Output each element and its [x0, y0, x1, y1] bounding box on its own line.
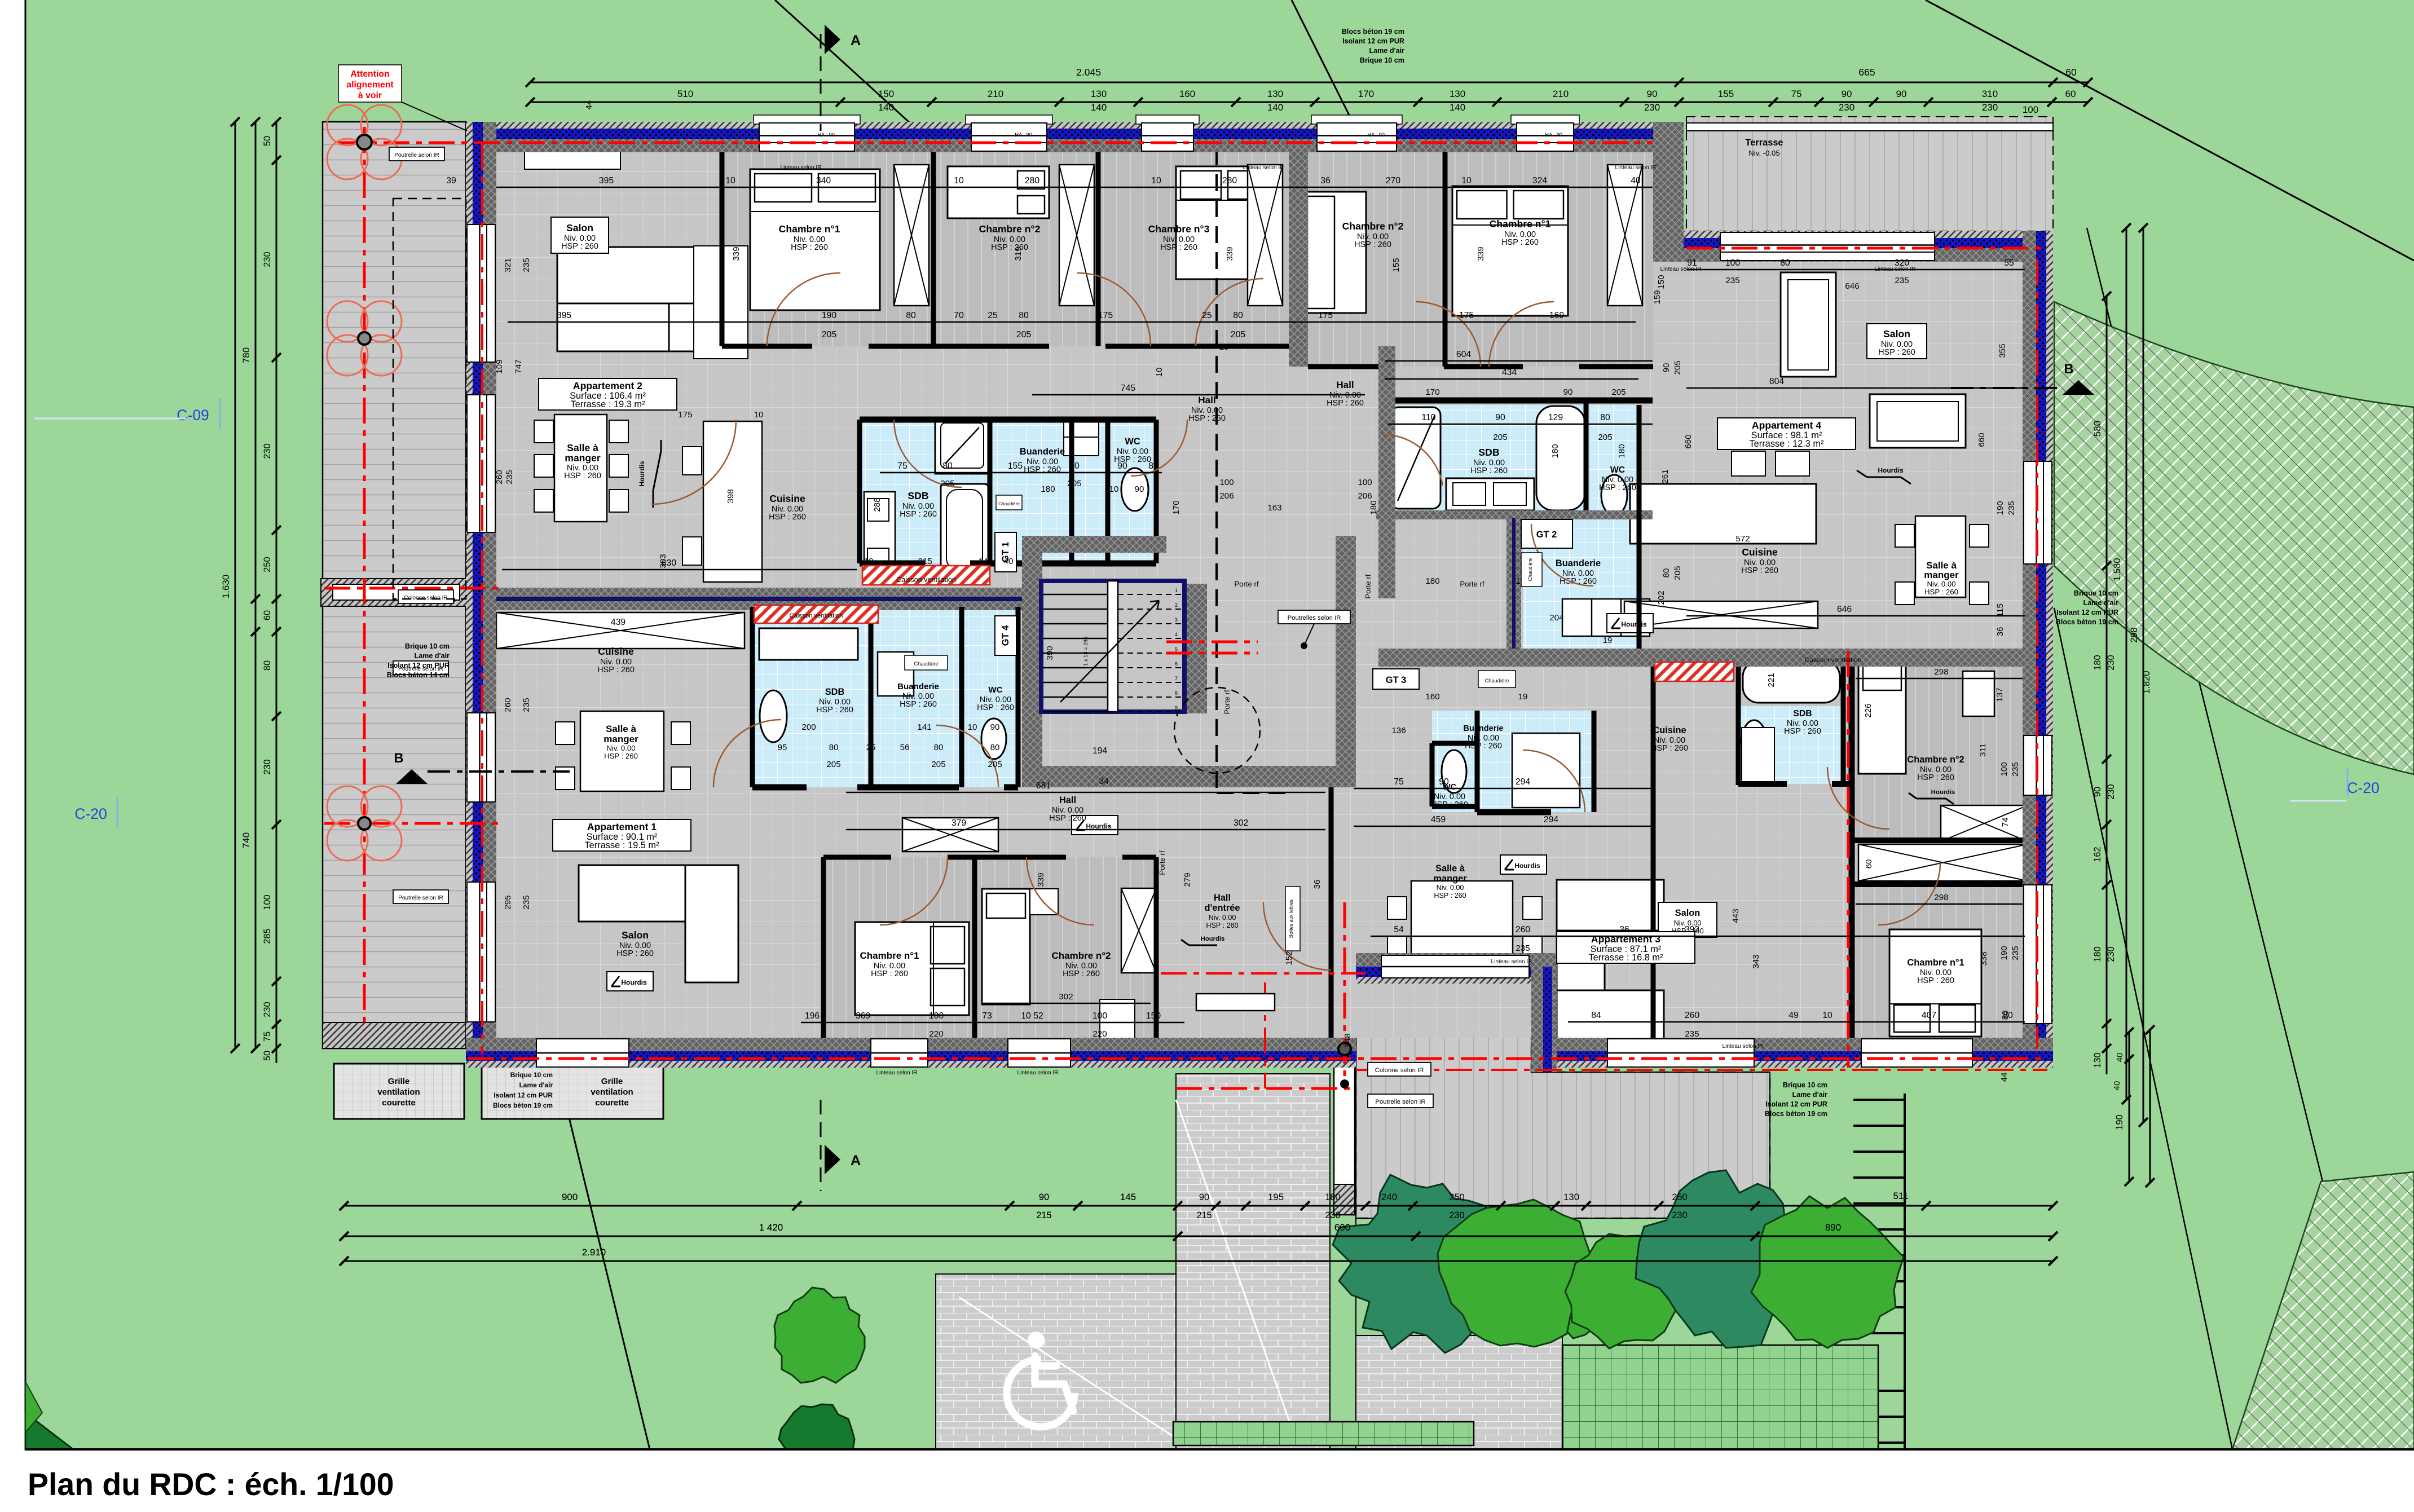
- svg-text:230: 230: [1449, 1210, 1464, 1220]
- svg-text:ventilation: ventilation: [591, 1087, 633, 1097]
- svg-text:160: 160: [1425, 692, 1439, 702]
- svg-text:280: 280: [1025, 176, 1040, 186]
- svg-text:manger: manger: [603, 734, 638, 744]
- svg-text:Boîtes aux lettres: Boîtes aux lettres: [1288, 899, 1294, 938]
- svg-text:900: 900: [562, 1192, 578, 1202]
- svg-text:226: 226: [1864, 703, 1873, 717]
- svg-text:298: 298: [1934, 893, 1948, 902]
- svg-text:235: 235: [2007, 501, 2016, 515]
- svg-text:19: 19: [1603, 636, 1613, 645]
- svg-text:155: 155: [1008, 461, 1023, 471]
- svg-text:manger: manger: [1924, 570, 1959, 580]
- svg-text:152: 152: [1284, 951, 1294, 965]
- svg-text:Chaudière: Chaudière: [914, 660, 938, 667]
- svg-text:Blocs béton 19 cm: Blocs béton 19 cm: [493, 1101, 553, 1109]
- svg-text:75: 75: [262, 1031, 272, 1042]
- svg-text:25: 25: [866, 743, 876, 752]
- svg-text:HSP : 260: HSP : 260: [1049, 814, 1086, 823]
- svg-text:215: 215: [1036, 1210, 1051, 1220]
- svg-text:90: 90: [1199, 1192, 1209, 1202]
- svg-text:660: 660: [1977, 433, 1986, 447]
- svg-text:294: 294: [1544, 815, 1559, 825]
- svg-text:140: 140: [878, 102, 894, 113]
- svg-text:100: 100: [1725, 258, 1741, 268]
- svg-text:Hourdis: Hourdis: [638, 461, 646, 487]
- svg-text:Salle à: Salle à: [606, 724, 636, 734]
- svg-text:80: 80: [1600, 413, 1610, 422]
- svg-text:604: 604: [1456, 350, 1472, 359]
- svg-text:110: 110: [1421, 413, 1435, 422]
- svg-text:HSP : 260: HSP : 260: [616, 949, 654, 958]
- svg-text:180: 180: [1550, 444, 1560, 458]
- svg-text:180: 180: [1041, 484, 1055, 494]
- svg-text:230: 230: [1982, 102, 1998, 113]
- svg-text:80: 80: [1019, 311, 1029, 320]
- svg-text:36: 36: [1320, 176, 1331, 186]
- svg-text:148: 148: [1343, 1033, 1353, 1047]
- svg-text:Appartement 3: Appartement 3: [1591, 933, 1660, 945]
- svg-text:270: 270: [1386, 176, 1401, 186]
- svg-text:Grille: Grille: [388, 1077, 410, 1086]
- svg-text:Blocs béton 14 cm: Blocs béton 14 cm: [387, 671, 450, 679]
- svg-text:SDB: SDB: [1478, 447, 1499, 458]
- svg-text:190: 190: [1995, 501, 2005, 515]
- svg-text:100: 100: [2023, 104, 2038, 115]
- svg-text:90: 90: [1896, 89, 1907, 99]
- svg-text:HA : 90: HA : 90: [817, 131, 835, 138]
- svg-text:205: 205: [931, 760, 945, 769]
- svg-text:321: 321: [503, 258, 513, 272]
- svg-text:à voir: à voir: [358, 91, 382, 100]
- svg-text:459: 459: [1431, 815, 1446, 825]
- svg-text:230: 230: [262, 252, 272, 267]
- svg-text:50: 50: [262, 136, 272, 146]
- svg-text:19: 19: [1518, 692, 1528, 702]
- svg-text:90: 90: [1135, 484, 1144, 494]
- svg-text:Poutrelles selon IR: Poutrelles selon IR: [1288, 615, 1341, 621]
- svg-text:Brique 10 cm: Brique 10 cm: [405, 642, 450, 650]
- svg-text:Niv. 0.00: Niv. 0.00: [606, 744, 635, 752]
- svg-text:HSP : 260: HSP : 260: [1599, 483, 1636, 492]
- svg-text:10 52: 10 52: [1021, 1011, 1043, 1021]
- svg-text:Salon: Salon: [1883, 328, 1910, 340]
- svg-text:90: 90: [990, 722, 1000, 732]
- svg-text:Brique 10 cm: Brique 10 cm: [1360, 56, 1404, 64]
- svg-text:Cuisine: Cuisine: [769, 493, 805, 504]
- svg-text:150: 150: [1146, 1011, 1161, 1021]
- svg-text:230: 230: [1839, 102, 1854, 113]
- svg-text:HSP : 260: HSP : 260: [769, 513, 806, 522]
- svg-text:747: 747: [514, 359, 523, 373]
- svg-text:140: 140: [1267, 102, 1283, 113]
- svg-text:Blocs béton 19 cm: Blocs béton 19 cm: [1342, 28, 1404, 36]
- svg-text:55: 55: [2004, 258, 2014, 268]
- svg-text:130: 130: [1563, 1192, 1579, 1202]
- svg-text:230: 230: [1644, 102, 1660, 113]
- svg-text:190: 190: [822, 311, 837, 320]
- svg-text:510: 510: [677, 89, 693, 99]
- svg-text:379: 379: [951, 818, 967, 828]
- svg-text:250: 250: [262, 557, 272, 572]
- svg-text:B: B: [394, 751, 403, 766]
- svg-text:HA : 90: HA : 90: [1545, 131, 1562, 138]
- svg-text:90: 90: [1495, 413, 1505, 422]
- svg-text:302: 302: [1234, 818, 1248, 828]
- svg-text:HSP : 260: HSP : 260: [1741, 566, 1778, 575]
- svg-text:Chambre n°2: Chambre n°2: [1051, 950, 1111, 961]
- svg-text:courette: courette: [382, 1098, 416, 1108]
- svg-text:294: 294: [1516, 777, 1531, 787]
- svg-text:145: 145: [1120, 1192, 1136, 1202]
- svg-text:230: 230: [2106, 946, 2116, 962]
- svg-text:155: 155: [1718, 89, 1734, 99]
- svg-text:260: 260: [495, 470, 504, 484]
- svg-text:Chambre n°2: Chambre n°2: [1342, 221, 1404, 232]
- svg-text:205: 205: [1673, 566, 1682, 580]
- svg-text:Linteau selon IR: Linteau selon IR: [876, 1070, 918, 1076]
- svg-text:WC: WC: [988, 685, 1002, 695]
- svg-text:GT 3: GT 3: [1386, 675, 1406, 685]
- svg-text:40: 40: [2112, 1081, 2122, 1091]
- svg-text:Isolant 12 cm PUR: Isolant 12 cm PUR: [494, 1091, 553, 1099]
- svg-text:HSP : 260: HSP : 260: [604, 752, 638, 760]
- svg-text:6: 6: [1175, 660, 1178, 667]
- svg-text:HSP : 260: HSP : 260: [1501, 238, 1539, 247]
- svg-text:646: 646: [1837, 605, 1852, 614]
- svg-text:235: 235: [522, 698, 531, 712]
- svg-text:443: 443: [1731, 909, 1741, 923]
- svg-text:298: 298: [1934, 667, 1948, 677]
- svg-text:1 x 18 = 285: 1 x 18 = 285: [1082, 637, 1089, 666]
- svg-text:10: 10: [1822, 1011, 1832, 1020]
- svg-text:260: 260: [1516, 925, 1531, 934]
- svg-text:90: 90: [1647, 89, 1658, 99]
- svg-text:2.910: 2.910: [582, 1247, 606, 1258]
- svg-text:343: 343: [1751, 954, 1761, 968]
- svg-text:75: 75: [1791, 89, 1802, 99]
- svg-text:40: 40: [1631, 176, 1641, 186]
- svg-text:36: 36: [1312, 880, 1322, 889]
- svg-text:Isolant 12 cm PUR: Isolant 12 cm PUR: [387, 662, 450, 669]
- svg-text:Salle à: Salle à: [1435, 863, 1465, 874]
- svg-text:Blocs béton 19 cm: Blocs béton 19 cm: [2056, 618, 2118, 626]
- svg-text:10: 10: [1151, 176, 1161, 186]
- svg-text:235: 235: [2011, 762, 2020, 776]
- svg-text:Hourdis: Hourdis: [1201, 936, 1225, 942]
- svg-text:90: 90: [2093, 787, 2103, 797]
- svg-text:Lame d'air: Lame d'air: [415, 652, 450, 660]
- svg-text:205: 205: [1611, 387, 1626, 397]
- svg-text:49: 49: [1789, 1011, 1799, 1020]
- svg-text:100: 100: [1219, 478, 1234, 487]
- svg-text:159: 159: [1653, 290, 1662, 304]
- svg-text:804: 804: [1769, 377, 1785, 386]
- svg-text:80: 80: [1233, 311, 1243, 320]
- svg-text:Salon: Salon: [566, 222, 593, 233]
- svg-text:1 420: 1 420: [759, 1222, 783, 1233]
- svg-text:130: 130: [2093, 1052, 2103, 1068]
- svg-text:Isolant 12 cm PUR: Isolant 12 cm PUR: [1342, 37, 1404, 45]
- svg-text:Terrasse : 19.3 m²: Terrasse : 19.3 m²: [570, 399, 645, 409]
- svg-text:4: 4: [1175, 631, 1178, 637]
- svg-text:Appartement 2: Appartement 2: [573, 380, 642, 391]
- svg-text:Brique 10 cm: Brique 10 cm: [1783, 1081, 1827, 1089]
- svg-text:646: 646: [1845, 281, 1859, 291]
- svg-text:210: 210: [1553, 89, 1569, 99]
- svg-text:2: 2: [1175, 602, 1178, 608]
- svg-text:190: 190: [2115, 1114, 2125, 1130]
- svg-text:Plan du RDC : éch. 1/100: Plan du RDC : éch. 1/100: [28, 1467, 394, 1502]
- svg-text:160: 160: [1179, 89, 1195, 99]
- svg-text:70: 70: [954, 311, 964, 320]
- svg-text:204: 204: [1549, 613, 1563, 623]
- svg-text:Chaudière: Chaudière: [998, 501, 1020, 506]
- svg-text:Terrasse : 16.8 m²: Terrasse : 16.8 m²: [1588, 953, 1663, 963]
- svg-text:572: 572: [1735, 534, 1750, 544]
- svg-text:Terrasse: Terrasse: [1745, 138, 1783, 148]
- svg-text:288: 288: [873, 497, 882, 512]
- svg-text:HSP : 260: HSP : 260: [900, 510, 937, 519]
- svg-text:130: 130: [1450, 89, 1465, 99]
- svg-text:205: 205: [1673, 360, 1682, 374]
- svg-text:235: 235: [1516, 944, 1530, 953]
- svg-text:36: 36: [1995, 627, 2005, 637]
- svg-text:109: 109: [495, 359, 504, 373]
- svg-text:310: 310: [1982, 89, 1998, 99]
- svg-text:260: 260: [503, 698, 513, 712]
- svg-text:235: 235: [2011, 946, 2020, 960]
- svg-text:Poutrelle selon IR: Poutrelle selon IR: [398, 895, 443, 901]
- svg-text:Colonne selon IR: Colonne selon IR: [404, 595, 447, 601]
- svg-text:80: 80: [990, 743, 1000, 752]
- svg-text:200: 200: [801, 722, 816, 732]
- svg-text:196: 196: [805, 1011, 820, 1021]
- svg-text:235: 235: [1685, 1029, 1699, 1039]
- svg-text:205: 205: [988, 760, 1002, 769]
- svg-text:Caisson ventilation: Caisson ventilation: [790, 612, 843, 619]
- svg-text:36: 36: [1619, 925, 1629, 934]
- svg-text:80: 80: [1780, 258, 1790, 268]
- svg-text:205: 205: [1493, 433, 1507, 442]
- svg-text:Linteau selon IR: Linteau selon IR: [1615, 165, 1657, 171]
- svg-text:205: 205: [1231, 330, 1246, 340]
- svg-text:202: 202: [1657, 590, 1666, 605]
- svg-text:7: 7: [1175, 675, 1178, 681]
- svg-text:1: 1: [1175, 587, 1178, 593]
- svg-text:HSP : 260: HSP : 260: [1431, 800, 1468, 809]
- svg-text:HSP : 260: HSP : 260: [564, 471, 601, 481]
- svg-text:Caisson ventilation: Caisson ventilation: [1805, 656, 1862, 664]
- svg-text:Poutrelle selon IR: Poutrelle selon IR: [394, 152, 439, 158]
- svg-text:Chambre n°1: Chambre n°1: [1490, 218, 1551, 230]
- svg-text:Linteau selon IR: Linteau selon IR: [1875, 266, 1916, 272]
- svg-text:180: 180: [1369, 500, 1378, 514]
- svg-text:Brique 10 cm: Brique 10 cm: [510, 1071, 553, 1079]
- svg-text:Buanderie: Buanderie: [1556, 558, 1601, 568]
- svg-text:206: 206: [1219, 491, 1234, 501]
- svg-text:56: 56: [900, 743, 910, 752]
- svg-text:215: 215: [918, 557, 932, 566]
- svg-text:180: 180: [1425, 576, 1439, 586]
- svg-text:90: 90: [1117, 461, 1127, 471]
- svg-text:665: 665: [1858, 67, 1875, 78]
- svg-text:Linteau selon IR: Linteau selon IR: [1660, 266, 1702, 272]
- svg-text:HSP : 260: HSP : 260: [1160, 243, 1197, 252]
- svg-text:115: 115: [1995, 603, 2005, 617]
- svg-text:298: 298: [2129, 627, 2139, 642]
- svg-text:HSP : 260: HSP : 260: [871, 969, 908, 978]
- svg-text:740: 740: [241, 832, 252, 848]
- svg-text:175: 175: [678, 410, 692, 420]
- svg-text:B: B: [2064, 362, 2073, 377]
- svg-text:175: 175: [1459, 311, 1474, 320]
- svg-text:40: 40: [1004, 557, 1014, 566]
- svg-text:195: 195: [1268, 1192, 1284, 1202]
- svg-text:50: 50: [262, 1051, 272, 1061]
- svg-text:311: 311: [1978, 743, 1988, 757]
- svg-text:2.045: 2.045: [1076, 67, 1101, 78]
- svg-text:GT 4: GT 4: [1001, 625, 1011, 646]
- svg-text:130: 130: [1267, 89, 1283, 99]
- svg-text:180: 180: [2093, 655, 2103, 670]
- svg-text:90: 90: [1039, 1192, 1049, 1202]
- svg-text:230: 230: [262, 759, 272, 774]
- svg-text:100: 100: [1093, 1011, 1108, 1021]
- svg-text:511: 511: [1893, 1191, 1908, 1201]
- svg-text:Linteau selon IR: Linteau selon IR: [1491, 959, 1532, 965]
- svg-text:9: 9: [1175, 704, 1178, 711]
- svg-text:Chaudière: Chaudière: [1527, 558, 1533, 581]
- svg-text:C-20: C-20: [2347, 779, 2379, 796]
- svg-text:60: 60: [1864, 859, 1874, 869]
- svg-text:230: 230: [262, 443, 272, 459]
- svg-text:Porte rf: Porte rf: [1223, 690, 1231, 715]
- svg-text:HSP : 260: HSP : 260: [1063, 969, 1100, 978]
- svg-text:220: 220: [1093, 1029, 1107, 1039]
- svg-text:434: 434: [1502, 368, 1517, 377]
- svg-text:1.580: 1.580: [2112, 558, 2122, 581]
- svg-text:10: 10: [1461, 176, 1472, 186]
- svg-text:303: 303: [658, 554, 668, 568]
- svg-text:250: 250: [1672, 1192, 1687, 1202]
- svg-text:HSP : 260: HSP : 260: [977, 703, 1014, 712]
- svg-text:215: 215: [1196, 1210, 1212, 1220]
- svg-text:261: 261: [1660, 469, 1670, 483]
- svg-text:C-09: C-09: [177, 407, 209, 424]
- svg-text:Buanderie: Buanderie: [1464, 724, 1504, 733]
- svg-text:Chaudière: Chaudière: [1484, 677, 1509, 684]
- svg-text:205: 205: [826, 760, 840, 769]
- svg-text:HSP : 260: HSP : 260: [597, 665, 635, 675]
- svg-text:80: 80: [1148, 461, 1158, 471]
- svg-text:Hall: Hall: [1059, 795, 1076, 805]
- svg-text:25: 25: [988, 311, 998, 320]
- svg-text:Niv. 0.00: Niv. 0.00: [1437, 884, 1464, 892]
- svg-text:407: 407: [1922, 1011, 1936, 1020]
- svg-text:100: 100: [1358, 478, 1372, 487]
- svg-text:HSP : 260: HSP : 260: [900, 700, 937, 709]
- svg-text:HSP : 260: HSP : 260: [1924, 588, 1958, 596]
- svg-text:90: 90: [1563, 387, 1573, 397]
- svg-text:Niv. -0.05: Niv. -0.05: [1748, 149, 1779, 157]
- svg-text:HSP : 260: HSP : 260: [1651, 744, 1688, 753]
- svg-text:Hourdis: Hourdis: [621, 978, 647, 986]
- svg-text:205: 205: [822, 330, 837, 340]
- svg-text:180: 180: [1325, 1192, 1340, 1202]
- svg-text:Cuisine: Cuisine: [1653, 725, 1686, 735]
- svg-text:54: 54: [1394, 925, 1404, 934]
- svg-text:194: 194: [1093, 746, 1108, 756]
- svg-text:221: 221: [1767, 673, 1776, 687]
- svg-text:SDB: SDB: [908, 490, 928, 501]
- svg-text:100: 100: [929, 1011, 944, 1021]
- svg-text:Brique 10 cm: Brique 10 cm: [2074, 589, 2118, 597]
- svg-text:240: 240: [1381, 1192, 1397, 1202]
- svg-text:Porte rf: Porte rf: [1234, 580, 1259, 588]
- svg-text:Porte rf: Porte rf: [1460, 580, 1484, 588]
- svg-text:180: 180: [1617, 444, 1627, 458]
- svg-text:74: 74: [2001, 818, 2010, 827]
- svg-text:Poutrelle selon IR: Poutrelle selon IR: [1375, 1099, 1425, 1105]
- svg-text:205: 205: [1016, 330, 1032, 340]
- svg-text:890: 890: [1825, 1222, 1841, 1233]
- svg-text:137: 137: [1995, 687, 2005, 702]
- svg-text:339: 339: [1036, 872, 1046, 887]
- svg-text:manger: manger: [1433, 874, 1467, 884]
- svg-text:alignement: alignement: [346, 80, 394, 90]
- svg-text:8: 8: [1175, 690, 1178, 696]
- svg-text:136: 136: [1391, 726, 1406, 735]
- svg-text:339: 339: [1476, 246, 1486, 261]
- svg-text:Hourdis: Hourdis: [1878, 466, 1904, 474]
- svg-text:Hall: Hall: [1336, 380, 1354, 390]
- svg-text:60: 60: [2065, 67, 2077, 78]
- svg-text:250: 250: [1449, 1192, 1464, 1202]
- svg-text:369: 369: [856, 1011, 871, 1021]
- svg-text:235: 235: [505, 470, 514, 484]
- svg-text:Chambre n°2: Chambre n°2: [1907, 755, 1964, 765]
- svg-text:Salle à: Salle à: [567, 442, 598, 453]
- svg-text:398: 398: [726, 489, 735, 503]
- svg-text:HSP : 260: HSP : 260: [1206, 922, 1238, 929]
- svg-text:25: 25: [1202, 311, 1212, 320]
- svg-text:Isolant 12 cm PUR: Isolant 12 cm PUR: [2056, 609, 2118, 616]
- svg-text:660: 660: [1684, 434, 1693, 448]
- svg-text:80: 80: [942, 461, 953, 471]
- svg-text:230: 230: [262, 1002, 272, 1017]
- svg-text:courette: courette: [595, 1098, 629, 1108]
- svg-text:Niv. 0.00: Niv. 0.00: [1927, 580, 1955, 588]
- svg-text:180: 180: [2093, 946, 2103, 962]
- svg-text:439: 439: [611, 618, 626, 627]
- svg-text:5: 5: [1175, 646, 1178, 652]
- svg-text:75: 75: [1394, 777, 1404, 787]
- svg-text:10: 10: [864, 557, 874, 566]
- svg-text:162: 162: [2093, 847, 2103, 862]
- svg-text:100: 100: [262, 894, 272, 910]
- svg-text:Chambre n°3: Chambre n°3: [1148, 223, 1210, 235]
- svg-text:Niv. 0.00: Niv. 0.00: [1209, 914, 1236, 922]
- svg-text:302: 302: [1059, 992, 1073, 1002]
- svg-text:150: 150: [1657, 275, 1666, 289]
- svg-text:1.820: 1.820: [2142, 671, 2152, 694]
- svg-text:Hourdis: Hourdis: [1621, 620, 1647, 628]
- svg-text:285: 285: [262, 928, 272, 944]
- svg-text:230: 230: [1672, 1210, 1687, 1220]
- svg-text:44: 44: [1999, 1073, 2009, 1082]
- svg-text:10: 10: [1219, 342, 1229, 352]
- svg-text:390: 390: [1045, 646, 1055, 660]
